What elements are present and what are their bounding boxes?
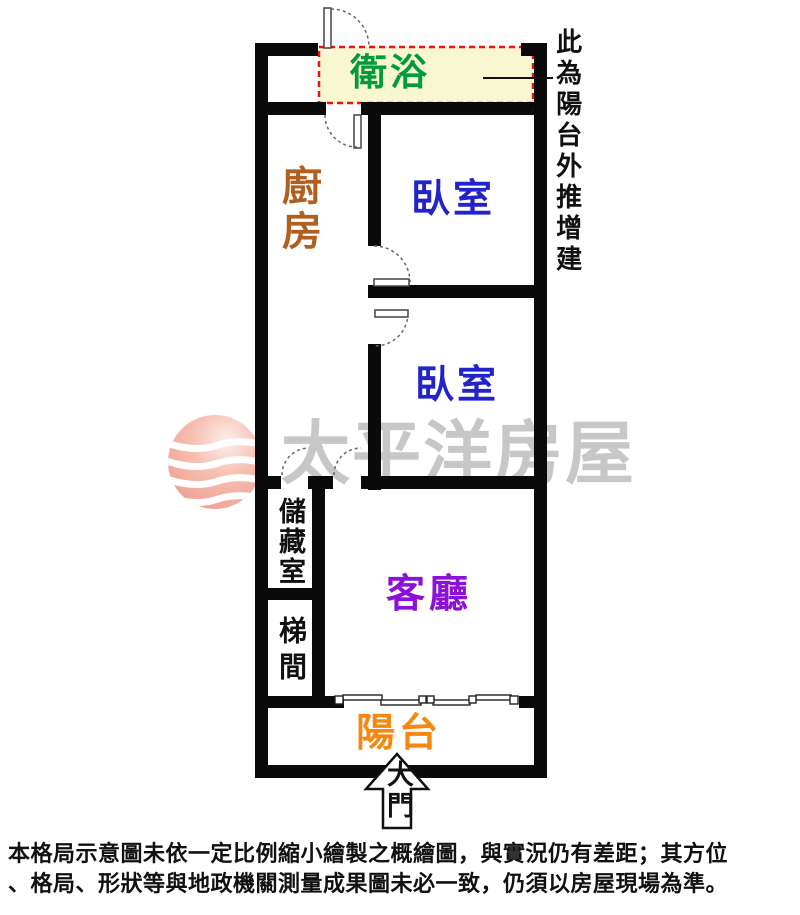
floorplan-page: 太平洋房屋: [0, 0, 800, 915]
disclaimer-text: 本格局示意圖未依一定比例縮小繪製之概繪圖，與實況仍有差距；其方位 、格局、形狀等…: [8, 840, 796, 900]
entrance-label: 大門: [384, 760, 411, 822]
room-label-living: 客廳: [386, 575, 472, 614]
disclaimer-line-2: 、格局、形狀等與地政機關測量成果圖未必一致，仍須以房屋現場為準。: [8, 870, 796, 900]
disclaimer-line-1: 本格局示意圖未依一定比例縮小繪製之概繪圖，與實況仍有差距；其方位: [8, 840, 796, 870]
labels-layer: 衛浴 廚房 臥室 臥室 儲藏室 梯間 客廳 陽台 大門 此為陽台外推增建: [0, 0, 800, 915]
room-label-bedroom-2: 臥室: [415, 366, 499, 405]
room-label-kitchen: 廚房: [278, 165, 318, 255]
room-label-bathroom: 衛浴: [350, 54, 430, 91]
room-label-stairwell: 梯間: [277, 616, 305, 688]
room-label-storage: 儲藏室: [276, 497, 303, 587]
balcony-addition-callout: 此為陽台外推增建: [552, 28, 581, 276]
room-label-balcony: 陽台: [356, 714, 442, 753]
room-label-bedroom-1: 臥室: [411, 180, 495, 219]
